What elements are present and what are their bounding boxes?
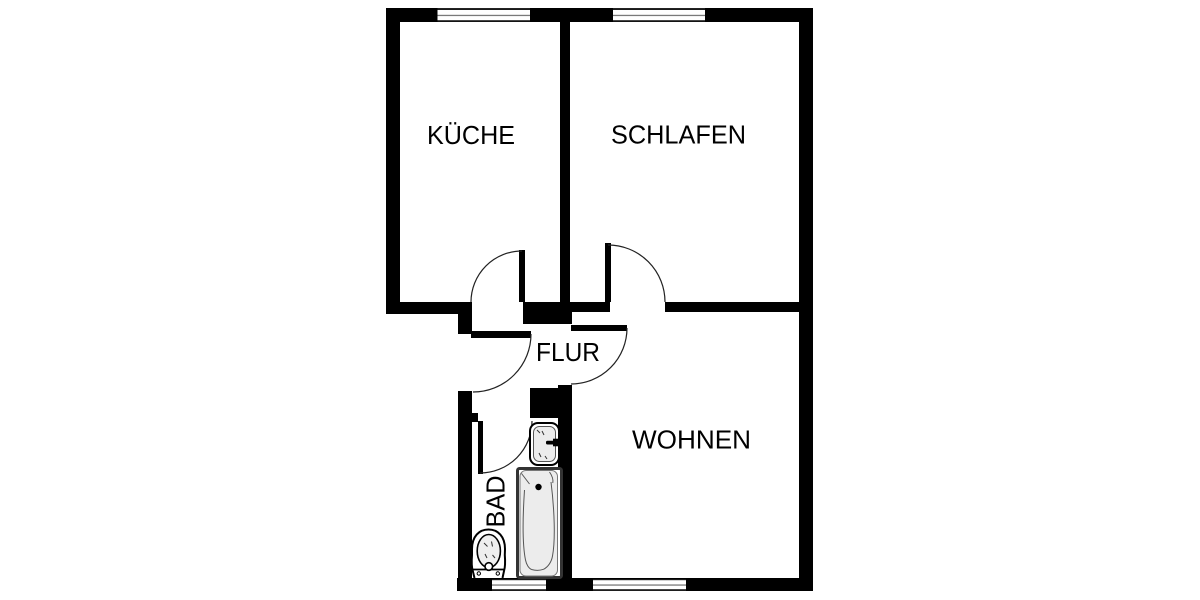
svg-text:KÜCHE: KÜCHE [427, 120, 515, 150]
svg-text:BAD: BAD [481, 476, 511, 528]
svg-text:FLUR: FLUR [536, 337, 600, 367]
svg-text:SCHLAFEN: SCHLAFEN [611, 120, 746, 150]
svg-text:WOHNEN: WOHNEN [632, 425, 751, 455]
